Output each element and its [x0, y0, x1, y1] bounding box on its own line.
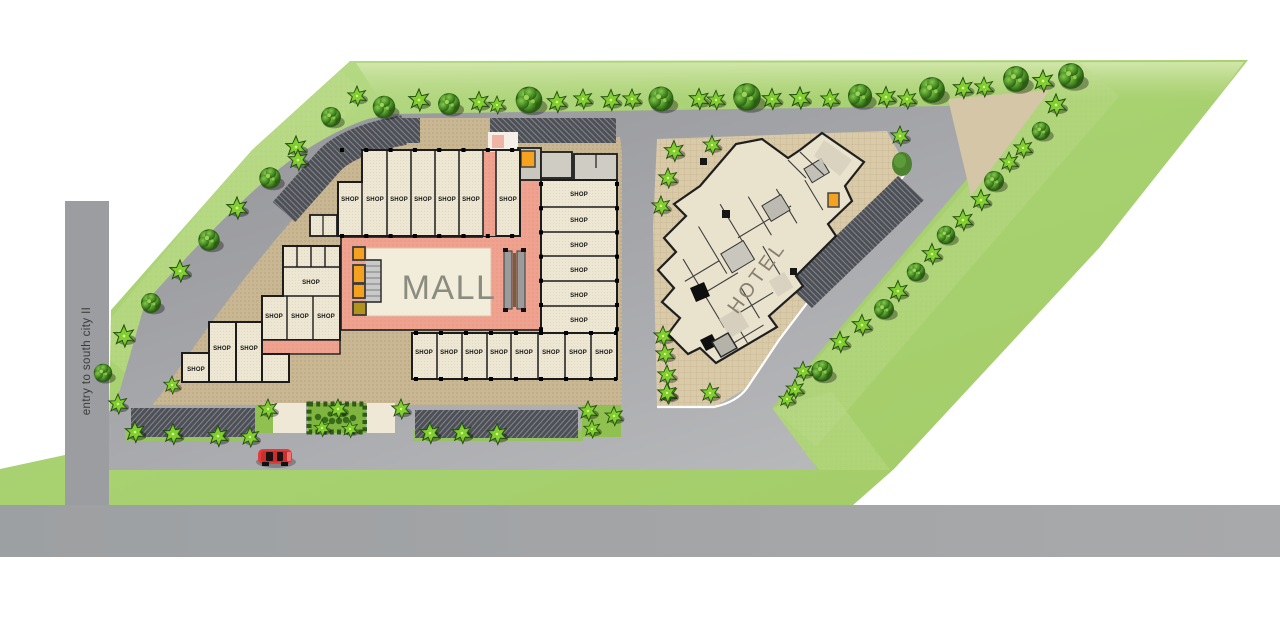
svg-text:SHOP: SHOP [317, 314, 335, 320]
svg-text:SHOP: SHOP [341, 197, 359, 203]
svg-text:SHOP: SHOP [414, 197, 432, 203]
svg-text:SHOP: SHOP [490, 350, 508, 356]
svg-text:SHOP: SHOP [595, 350, 613, 356]
svg-text:MALL: MALL [402, 269, 497, 307]
svg-text:SHOP: SHOP [570, 243, 588, 249]
svg-text:SHOP: SHOP [465, 350, 483, 356]
svg-text:SHOP: SHOP [570, 268, 588, 274]
svg-text:SHOP: SHOP [415, 350, 433, 356]
svg-text:SHOP: SHOP [213, 346, 231, 352]
svg-text:SHOP: SHOP [240, 346, 258, 352]
svg-text:SHOP: SHOP [187, 367, 205, 373]
svg-text:SHOP: SHOP [499, 197, 517, 203]
svg-text:SHOP: SHOP [462, 197, 480, 203]
svg-text:SHOP: SHOP [265, 314, 283, 320]
svg-text:SHOP: SHOP [570, 192, 588, 198]
svg-text:SHOP: SHOP [438, 197, 456, 203]
svg-text:SHOP: SHOP [515, 350, 533, 356]
svg-text:SHOP: SHOP [570, 318, 588, 324]
svg-text:SHOP: SHOP [542, 350, 560, 356]
svg-text:SHOP: SHOP [570, 293, 588, 299]
svg-text:SHOP: SHOP [390, 197, 408, 203]
svg-text:SHOP: SHOP [291, 314, 309, 320]
svg-text:SHOP: SHOP [570, 218, 588, 224]
svg-text:SHOP: SHOP [440, 350, 458, 356]
svg-text:SHOP: SHOP [366, 197, 384, 203]
svg-text:SHOP: SHOP [569, 350, 587, 356]
svg-text:SHOP: SHOP [302, 280, 320, 286]
svg-text:entry to south city II: entry to south city II [81, 307, 93, 416]
